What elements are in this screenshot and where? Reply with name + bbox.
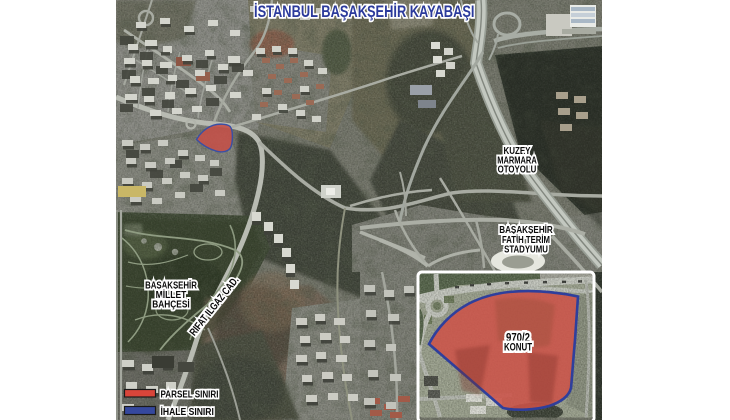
svg-text:KONUT: KONUT	[504, 342, 532, 354]
svg-text:İHALE SINIRI: İHALE SINIRI	[161, 405, 214, 418]
svg-text:İSTANBUL BAŞAKŞEHİR KAYABAŞI: İSTANBUL BAŞAKŞEHİR KAYABAŞI	[254, 2, 475, 21]
svg-text:STADYUMU: STADYUMU	[504, 244, 548, 255]
svg-text:OTOYOLU: OTOYOLU	[498, 165, 537, 176]
svg-text:BAHÇESİ: BAHÇESİ	[152, 298, 189, 311]
svg-text:PARSEL SINIRI: PARSEL SINIRI	[161, 389, 219, 400]
